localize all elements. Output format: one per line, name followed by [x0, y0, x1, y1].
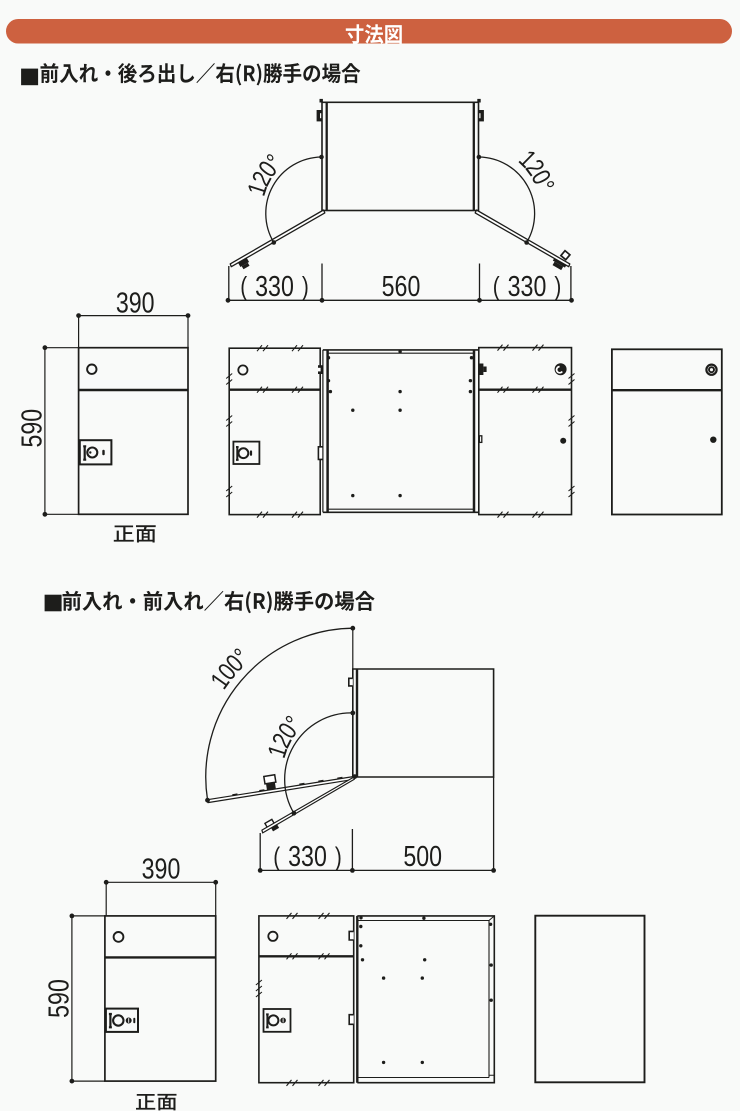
svg-text:390: 390	[142, 852, 181, 885]
svg-text:390: 390	[116, 286, 155, 319]
svg-text:500: 500	[403, 840, 442, 873]
svg-text:590: 590	[15, 409, 48, 448]
svg-text:560: 560	[382, 269, 421, 302]
svg-text:590: 590	[42, 979, 75, 1018]
